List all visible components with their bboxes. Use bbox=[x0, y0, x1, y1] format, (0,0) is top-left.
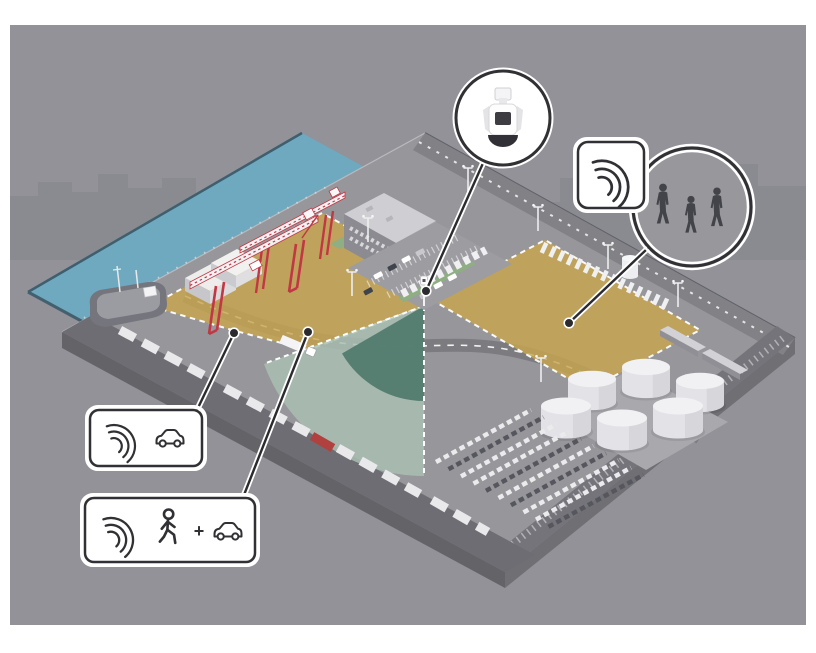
leader-dot-device bbox=[421, 286, 431, 296]
callout-radar-square bbox=[575, 139, 647, 211]
callout-person-vehicle-zone: + bbox=[82, 495, 258, 565]
illustration-canvas: + bbox=[0, 0, 816, 653]
plus-sign: + bbox=[194, 521, 205, 541]
port-radar-illustration: + bbox=[0, 0, 816, 653]
callout-vehicle-zone bbox=[87, 407, 205, 469]
leader-dot-people bbox=[564, 318, 574, 328]
leader-dot-vehicle-zone bbox=[229, 328, 239, 338]
callout-device-circle bbox=[454, 69, 552, 167]
leader-dot-person-vehicle-zone bbox=[303, 327, 313, 337]
